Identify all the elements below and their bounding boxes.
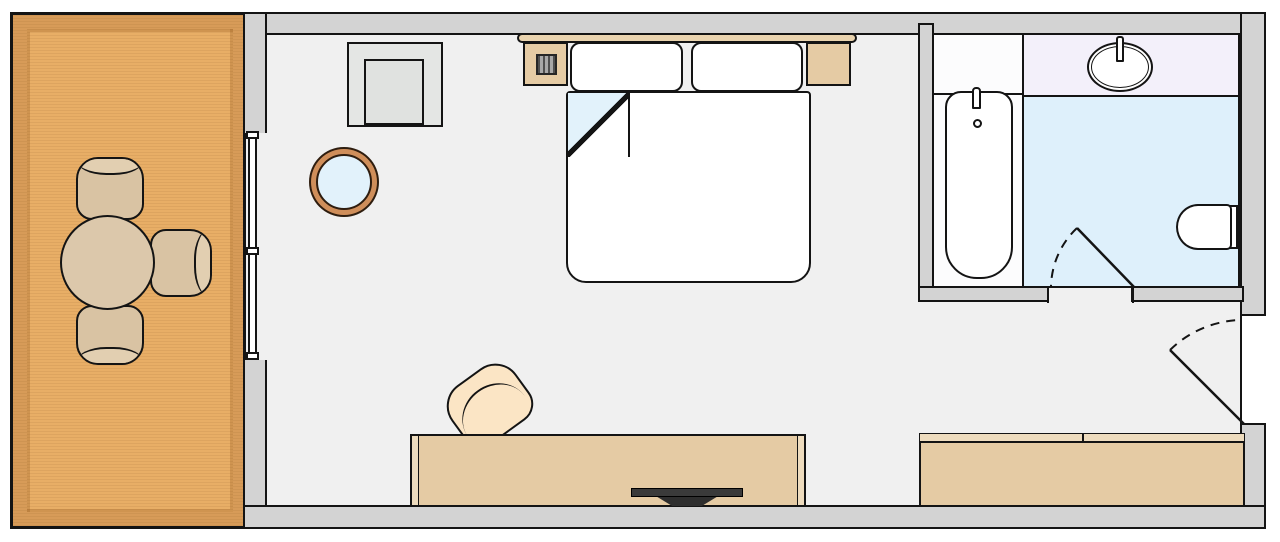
sheet-fold bbox=[568, 93, 630, 157]
desk-tv-console bbox=[410, 434, 806, 507]
television bbox=[631, 488, 743, 497]
wardrobe-closet bbox=[919, 441, 1245, 507]
patio-chair-backrest bbox=[76, 347, 144, 363]
wall-bathroom-bottom-right bbox=[1131, 286, 1244, 302]
wall-bottom bbox=[243, 505, 1266, 529]
window-frame-middle bbox=[246, 247, 259, 255]
pillow-left bbox=[570, 42, 683, 92]
nightstand-right bbox=[806, 42, 851, 86]
patio-chair-backrest bbox=[76, 159, 144, 175]
bathtub-faucet bbox=[972, 87, 981, 109]
square-armchair bbox=[347, 42, 443, 127]
bathroom bbox=[932, 33, 1240, 288]
sink-faucet bbox=[1116, 36, 1124, 62]
toilet bbox=[1176, 204, 1232, 250]
patio-chair-bottom bbox=[76, 305, 144, 365]
patio-chair-backrest bbox=[194, 229, 210, 297]
bathroom-main-area bbox=[1024, 35, 1238, 286]
wall-balcony-upper bbox=[243, 12, 267, 135]
round-glass-table bbox=[316, 154, 372, 210]
floor-plan bbox=[0, 0, 1280, 542]
bathtub-compartment bbox=[934, 35, 1024, 286]
wall-right-upper bbox=[1240, 12, 1266, 316]
bathtub-drain bbox=[973, 119, 982, 128]
patio-chair-right bbox=[150, 229, 212, 297]
pillow-right bbox=[691, 42, 803, 92]
double-bed bbox=[566, 91, 811, 283]
round-dining-table bbox=[60, 215, 155, 310]
window-frame-bottom bbox=[246, 352, 259, 360]
nightstand-left bbox=[523, 42, 568, 86]
armchair-seat bbox=[364, 59, 424, 125]
desk-side-panel-left bbox=[412, 436, 419, 505]
wall-bathroom-bottom-left bbox=[918, 286, 1049, 302]
wall-top bbox=[243, 12, 1266, 35]
vanity-counter bbox=[1024, 35, 1238, 97]
desk-side-panel-right bbox=[797, 436, 804, 505]
window-frame-top bbox=[246, 131, 259, 139]
telephone bbox=[536, 54, 557, 75]
wall-balcony-lower bbox=[243, 358, 267, 529]
patio-chair-top bbox=[76, 157, 144, 220]
bath-shelf bbox=[934, 35, 1022, 95]
